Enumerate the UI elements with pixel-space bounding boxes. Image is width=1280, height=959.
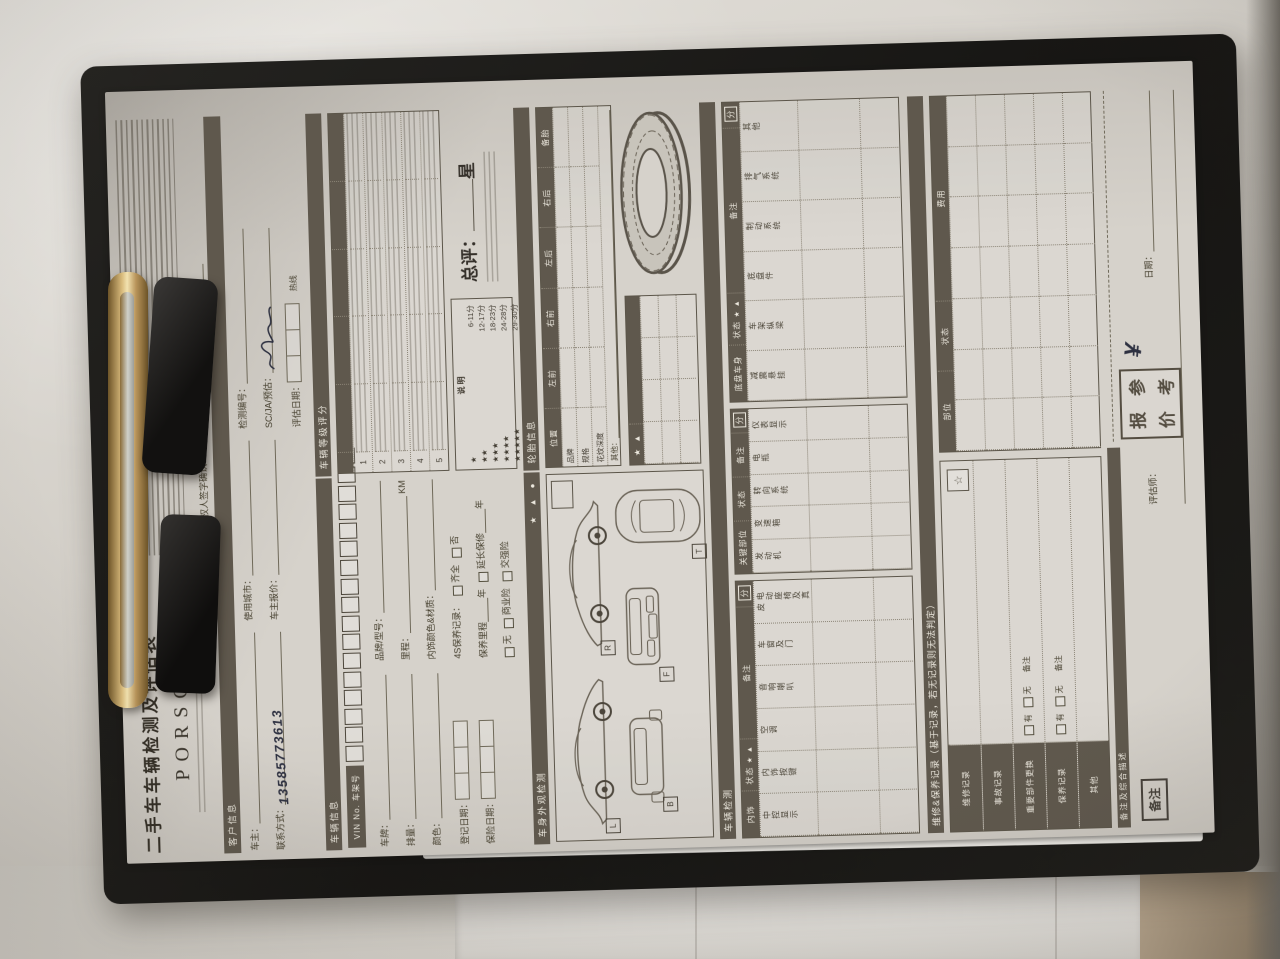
- displacement-line: [400, 674, 416, 819]
- inspection-form: 二手车车辆检测及评估表 PORSCHE 车主或授权人签字确认： 日期： 客户信息…: [106, 63, 1213, 864]
- clip-pad: [155, 514, 221, 694]
- color-field: 颜色：: [425, 673, 443, 845]
- insurance-options-row: 无 商业险 交强险: [498, 541, 514, 657]
- customer-band-label: 客户信息: [225, 802, 239, 846]
- checkbox-none: [1055, 696, 1065, 706]
- opt-compulsory-label: 交强险: [498, 541, 512, 568]
- vin-box: [343, 671, 361, 688]
- service-record-field: 4S保养记录： 齐全 否: [447, 536, 464, 659]
- summary-band-label: 备注及综合描述: [1117, 750, 1130, 820]
- inspection-table-interior: 内饰 状态 ★ ▲ 备注 分 中控显示 内饰按键 空调 音响喇叭 车窗及门 电动…: [735, 576, 920, 839]
- contact-handwritten-value: 13585773613: [269, 708, 292, 805]
- vin-box: [342, 634, 360, 651]
- opt-commercial-label: 商业险: [499, 588, 513, 615]
- brand-model-field: 品牌/型号：: [368, 481, 386, 661]
- plate-line: [374, 675, 390, 820]
- footer-date-label: 日期：: [1141, 251, 1155, 278]
- scja-signature-scribble: [260, 303, 280, 373]
- service-mileage-field: 保养里程 年 延长保修 年: [472, 500, 490, 658]
- view-letter-T: T: [692, 543, 707, 558]
- report-no-field: 检测编号：: [230, 229, 249, 429]
- vin-box: [340, 560, 358, 577]
- mileage-line: [395, 497, 411, 634]
- vin-box: [342, 615, 360, 632]
- vin-box: [338, 485, 356, 502]
- car-side-view-left: L: [560, 671, 617, 832]
- owner-price-line: [264, 440, 280, 575]
- tire-illustration: [615, 104, 700, 282]
- vin-box: [339, 541, 357, 558]
- year-unit-2: 年: [472, 500, 485, 509]
- city-label: 使用城市：: [240, 576, 254, 621]
- car-front-view: F: [620, 574, 669, 679]
- keyparts-items-row: 发动机 变速箱 转向系统 电瓶 仪表显示: [748, 408, 811, 574]
- scja-field: SC/JA/预估：: [256, 228, 275, 428]
- mileage-field: 里程： KM: [394, 480, 412, 660]
- price-reference-stamp: 报参 价考: [1119, 368, 1183, 440]
- appraiser-field: 评估师：: [1146, 468, 1160, 504]
- star-box-icon: ☆: [947, 469, 970, 492]
- owner-line: [243, 633, 260, 824]
- view-letter-F: F: [659, 666, 674, 681]
- grade-band-label: 车辆等级评分: [315, 403, 330, 469]
- opt-no-label: 否: [447, 536, 460, 545]
- vin-box: [345, 745, 363, 762]
- summary-band: 备注及综合描述: [1107, 448, 1131, 828]
- displacement-field: 排量：: [399, 674, 417, 846]
- view-letter-L: L: [606, 818, 621, 833]
- eval-date-label: 评估日期：: [289, 382, 303, 427]
- checkbox-no: [452, 547, 462, 557]
- clip-brass-slot: [120, 292, 134, 688]
- service-record-label: 4S保养记录：: [449, 603, 464, 659]
- view-letter-R: R: [600, 640, 615, 655]
- checkbox-ext-warranty: [478, 572, 488, 582]
- checkbox-commercial: [504, 618, 514, 628]
- plate-field: 车牌：: [373, 675, 391, 847]
- view-letter-B: B: [663, 796, 678, 811]
- overall-note-lines: [483, 151, 499, 281]
- inspection-table-chassis: 底盘车身 状态 ★ ▲ 备注 分 减震悬挂 车架纵梁 底盘件 制动系统 排气系统…: [721, 97, 908, 403]
- color-label: 颜色：: [429, 818, 443, 845]
- insure-date-field: 保险日期：: [479, 720, 498, 844]
- checkbox-none: [505, 647, 515, 657]
- city-line: [238, 441, 254, 576]
- footer-dashed-divider: [1103, 91, 1114, 442]
- interior-items-row: 中控显示 内饰按键 空调 音响喇叭 车窗及门 电动座椅及真皮: [753, 579, 818, 837]
- footer-date-field: 日期：: [1137, 91, 1155, 279]
- vin-box: [339, 522, 357, 539]
- color-line: [426, 673, 442, 818]
- inspection-band-label: 车辆检测: [720, 788, 734, 832]
- appraiser-label: 评估师：: [1146, 468, 1160, 504]
- checkbox-has: [1024, 725, 1034, 735]
- vin-box: [341, 578, 359, 595]
- opt-none-label: 无: [500, 635, 513, 644]
- vehicle-band-label: 车辆信息: [326, 799, 340, 843]
- exterior-status-grid: ★ ▲: [624, 294, 701, 466]
- car-views-panel: L R: [546, 470, 715, 842]
- vin-box: [343, 653, 361, 670]
- inspection-table-keyparts: 关键部位 状态 备注 分 发动机 变速箱 转向系统 电瓶 仪表显示: [730, 404, 913, 575]
- hotline-label: 热线: [288, 275, 299, 291]
- interior-field: 内饰颜色&材质：: [420, 479, 438, 659]
- year-unit: 年: [475, 589, 488, 598]
- service-mileage-label: 保养里程: [476, 622, 490, 658]
- brand-model-line: [369, 481, 385, 614]
- grade-band: 车辆等级评分: [305, 113, 331, 476]
- vin-box: [338, 504, 356, 521]
- opt-complete-label: 齐全: [448, 565, 462, 583]
- eval-date-field: 评估日期： 热线: [284, 275, 303, 427]
- checkbox-none: [1023, 697, 1033, 707]
- owner-price-label: 车主报价：: [266, 575, 280, 620]
- vin-row: VIN No. 车架号: [337, 445, 367, 847]
- box-crease: [1055, 869, 1057, 959]
- status-grid-symbols: ★ ▲: [629, 424, 644, 464]
- maintenance-record-table: ☆ 维修记录 事故记录 重要部件更换 有 无 备注: [939, 456, 1112, 833]
- owner-label: 车主：: [248, 823, 262, 850]
- checkbox-compulsory: [502, 571, 512, 581]
- exterior-symbols: ★ ▲ ●: [527, 479, 537, 524]
- remark-box-label: 备注: [1141, 778, 1169, 821]
- clip-lever: [141, 276, 219, 476]
- overall-rating: 总评：星: [452, 151, 499, 282]
- mileage-unit: KM: [397, 480, 407, 494]
- owner-price-field: 车主报价：: [263, 440, 281, 620]
- footer-date-line: [1138, 91, 1155, 252]
- tire-band-label: 轮胎信息: [524, 419, 538, 463]
- grade-table: 1 2 3 4 5: [327, 110, 449, 474]
- service-mileage-line: [476, 598, 489, 622]
- star-legend-box: 说明 ★6-11分 ★★12-17分 ★★★18-23分 ★★★★24-28分 …: [451, 297, 518, 471]
- overall-unit: 星: [458, 162, 477, 180]
- contact-field: 联系方式： 13585773613: [268, 632, 287, 850]
- city-field: 使用城市：: [237, 441, 255, 621]
- vin-box: [344, 708, 362, 725]
- vin-box: [345, 727, 363, 744]
- plate-label: 车牌：: [377, 820, 391, 847]
- reg-date-field: 登记日期：: [453, 720, 472, 844]
- maintenance-band-label: 维修&保养记录（基于记录，若无记录则无法判定）: [923, 599, 943, 826]
- ext-warranty-label: 延长保修: [473, 533, 487, 569]
- overall-label: 总评：: [460, 231, 480, 283]
- vin-label: VIN No. 车架号: [346, 765, 366, 847]
- car-side-view-right: R: [555, 493, 612, 654]
- mileage-label: 里程：: [398, 633, 412, 660]
- displacement-label: 排量：: [403, 819, 417, 846]
- handwritten-currency-mark: ¥: [1120, 341, 1149, 358]
- vin-box: [341, 597, 359, 614]
- checkbox-has: [1056, 724, 1066, 734]
- checkbox-complete: [453, 585, 463, 595]
- contact-label: 联系方式：: [273, 805, 287, 850]
- exterior-band-label: 车身外观检测: [534, 771, 549, 837]
- owner-field: 车主：: [242, 633, 261, 851]
- overall-blank-line: [458, 179, 474, 231]
- vin-box: [344, 690, 362, 707]
- reg-date-label: 登记日期：: [457, 799, 471, 844]
- interior-label: 内饰颜色&材质：: [423, 590, 438, 659]
- scja-label: SC/JA/预估：: [261, 373, 276, 428]
- tire-table: 位置 左前 右前 左后 右后 备胎 品牌 规格 花纹深度: [535, 105, 621, 468]
- footer-long-line: [1173, 90, 1186, 504]
- recondition-cost-table: 部位 状态 费用: [929, 91, 1101, 453]
- chassis-items-row: 减震悬挂 车架纵梁 底盘件 制动系统 排气系统 其他: [739, 101, 806, 402]
- insure-date-label: 保险日期：: [483, 799, 497, 844]
- report-no-label: 检测编号：: [235, 384, 249, 429]
- report-no-line: [231, 229, 247, 384]
- car-top-view: T: [611, 479, 705, 554]
- photo-scene: 二手车车辆检测及评估表 PORSCHE 车主或授权人签字确认： 日期： 客户信息…: [0, 0, 1280, 959]
- ext-warranty-line: [474, 509, 487, 533]
- insure-date-boxes: [479, 720, 496, 799]
- clipboard: 二手车车辆检测及评估表 PORSCHE 车主或授权人签字确认： 日期： 客户信息…: [80, 34, 1260, 905]
- reg-date-boxes: [453, 720, 470, 799]
- car-back-view: B: [623, 704, 672, 809]
- eval-date-boxes: [285, 303, 302, 382]
- brand-model-label: 品牌/型号：: [372, 613, 386, 661]
- interior-line: [421, 479, 436, 590]
